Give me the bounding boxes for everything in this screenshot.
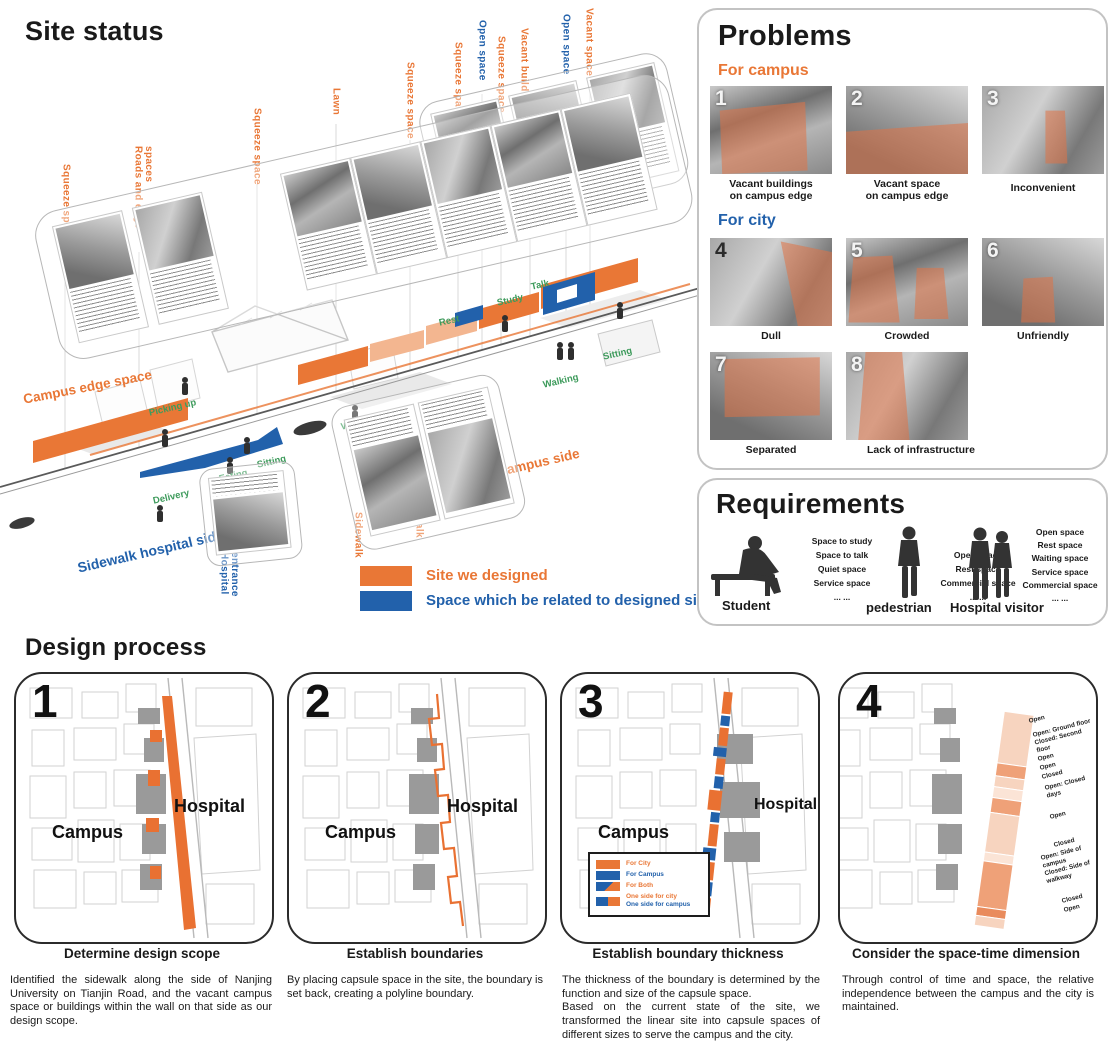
- student-silhouette: [703, 534, 799, 598]
- legend-swatch-for-campus: [596, 871, 620, 880]
- photo-box-hospital-entrance: [198, 460, 304, 567]
- space-label-lawn: Lawn: [330, 88, 341, 115]
- step4-caption: Through control of time and space, the r…: [842, 974, 1094, 1015]
- step2-caption: By placing capsule space in the site, th…: [287, 974, 543, 1001]
- problem-caption-3: Inconvenient: [982, 182, 1104, 194]
- legend-label-related: Space which be related to designed site: [426, 592, 710, 609]
- problem-photo-3: 3: [982, 86, 1104, 174]
- problem-caption-7: Separated: [710, 444, 832, 456]
- problem-photo-2: 2: [846, 86, 968, 174]
- space-label-open-1: Open space: [476, 20, 487, 81]
- problem-caption-4: Dull: [710, 330, 832, 342]
- poster: Site status: [0, 0, 1111, 1052]
- step1-heading: Determine design scope: [14, 946, 270, 961]
- legend-swatch-related: [360, 591, 412, 611]
- legend-swatch-for-city: [596, 860, 620, 869]
- legend-swatch-designed: [360, 566, 412, 586]
- problems-group-city: For city: [718, 212, 776, 230]
- design-step-2: 2 Campus Hospital: [287, 672, 547, 944]
- design-process-title: Design process: [25, 634, 207, 662]
- step2-hospital-label: Hospital: [447, 796, 518, 817]
- step3-campus-label: Campus: [598, 822, 669, 843]
- hospital-visitor-silhouette: [964, 526, 1016, 602]
- problem-caption-1: Vacant buildings on campus edge: [710, 178, 832, 202]
- requirements-title: Requirements: [716, 488, 905, 520]
- problem-photo-1: 1: [710, 86, 832, 174]
- problem-photo-4: 4: [710, 238, 832, 326]
- problem-caption-6: Unfriendly: [982, 330, 1104, 342]
- pedestrian-silhouette: [892, 526, 926, 600]
- site-photo-card: [132, 192, 229, 325]
- site-photo-card: [52, 210, 149, 343]
- design-step-3: 3 Campus Hospital For City For Campus Fo…: [560, 672, 820, 944]
- step3-heading: Establish boundary thickness: [560, 946, 816, 961]
- step3-legend: For City For Campus For Both One side fo…: [588, 852, 710, 917]
- step3-caption: The thickness of the boundary is determi…: [562, 974, 820, 1042]
- persona-name-pedestrian: pedestrian: [866, 600, 932, 615]
- step1-caption: Identified the sidewalk along the side o…: [10, 974, 272, 1029]
- space-label-open-2: Open space: [560, 14, 571, 75]
- problems-group-campus: For campus: [718, 62, 809, 80]
- step2-heading: Establish boundaries: [287, 946, 543, 961]
- problem-photo-7: 7: [710, 352, 832, 440]
- legend-swatch-one-side: [596, 897, 620, 906]
- site-photo-card: [208, 470, 292, 556]
- legend-label-designed: Site we designed: [426, 567, 548, 584]
- step4-heading: Consider the space-time dimension: [838, 946, 1094, 961]
- problem-caption-8: Lack of infrastructure: [846, 444, 996, 456]
- hospital-visitor-needs: Open space Rest space Waiting space Serv…: [1016, 526, 1104, 605]
- problem-caption-2: Vacant space on campus edge: [846, 178, 968, 202]
- problem-photo-5: 5: [846, 238, 968, 326]
- design-step-1: 1 Campus Hospital: [14, 672, 274, 944]
- design-step-4: 4 Open Open: Ground floor Closed: Second…: [838, 672, 1098, 944]
- problem-caption-5: Crowded: [846, 330, 968, 342]
- problems-title: Problems: [718, 20, 852, 53]
- step2-campus-label: Campus: [325, 822, 396, 843]
- step1-campus-label: Campus: [52, 822, 123, 843]
- student-needs: Space to study Space to talk Quiet space…: [798, 534, 886, 604]
- step3-hospital-label: Hospital: [754, 796, 817, 814]
- legend-swatch-for-both: [596, 882, 620, 891]
- step1-hospital-label: Hospital: [174, 796, 245, 817]
- problem-photo-6: 6: [982, 238, 1104, 326]
- persona-name-student: Student: [722, 598, 770, 613]
- problem-photo-8: 8: [846, 352, 968, 440]
